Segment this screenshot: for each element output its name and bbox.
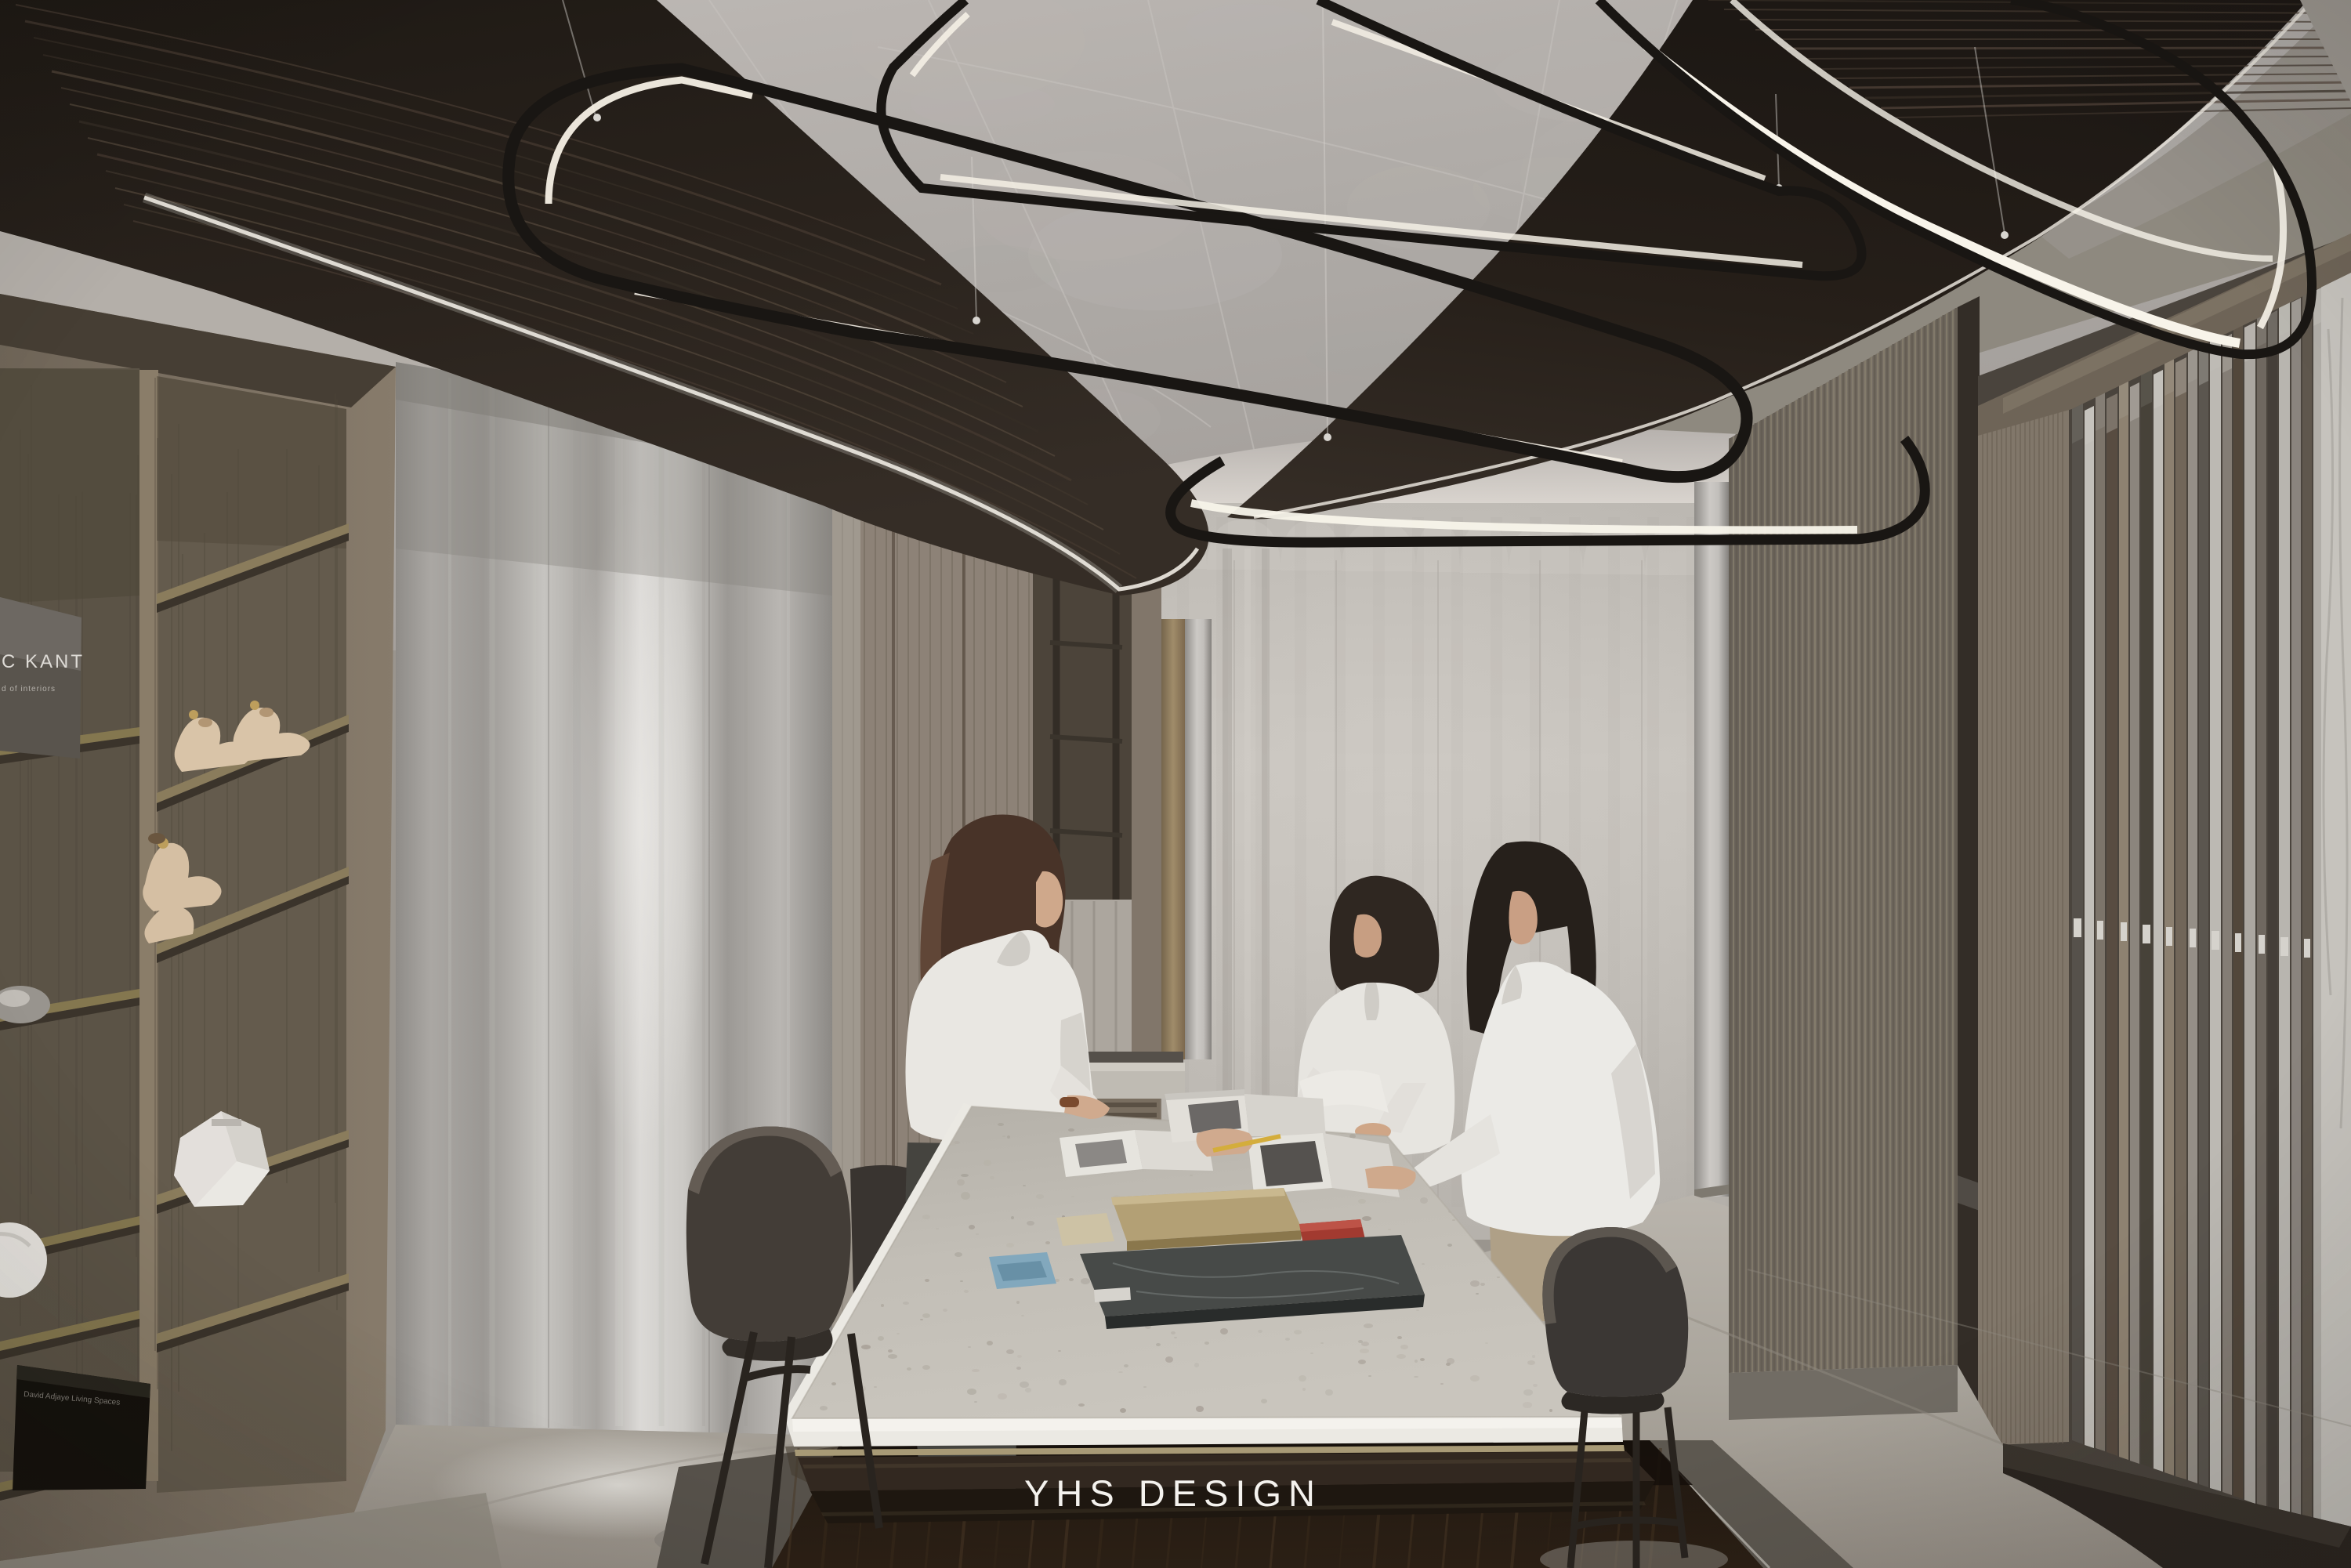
- svg-text:YHS DESIGN: YHS DESIGN: [1024, 1472, 1322, 1514]
